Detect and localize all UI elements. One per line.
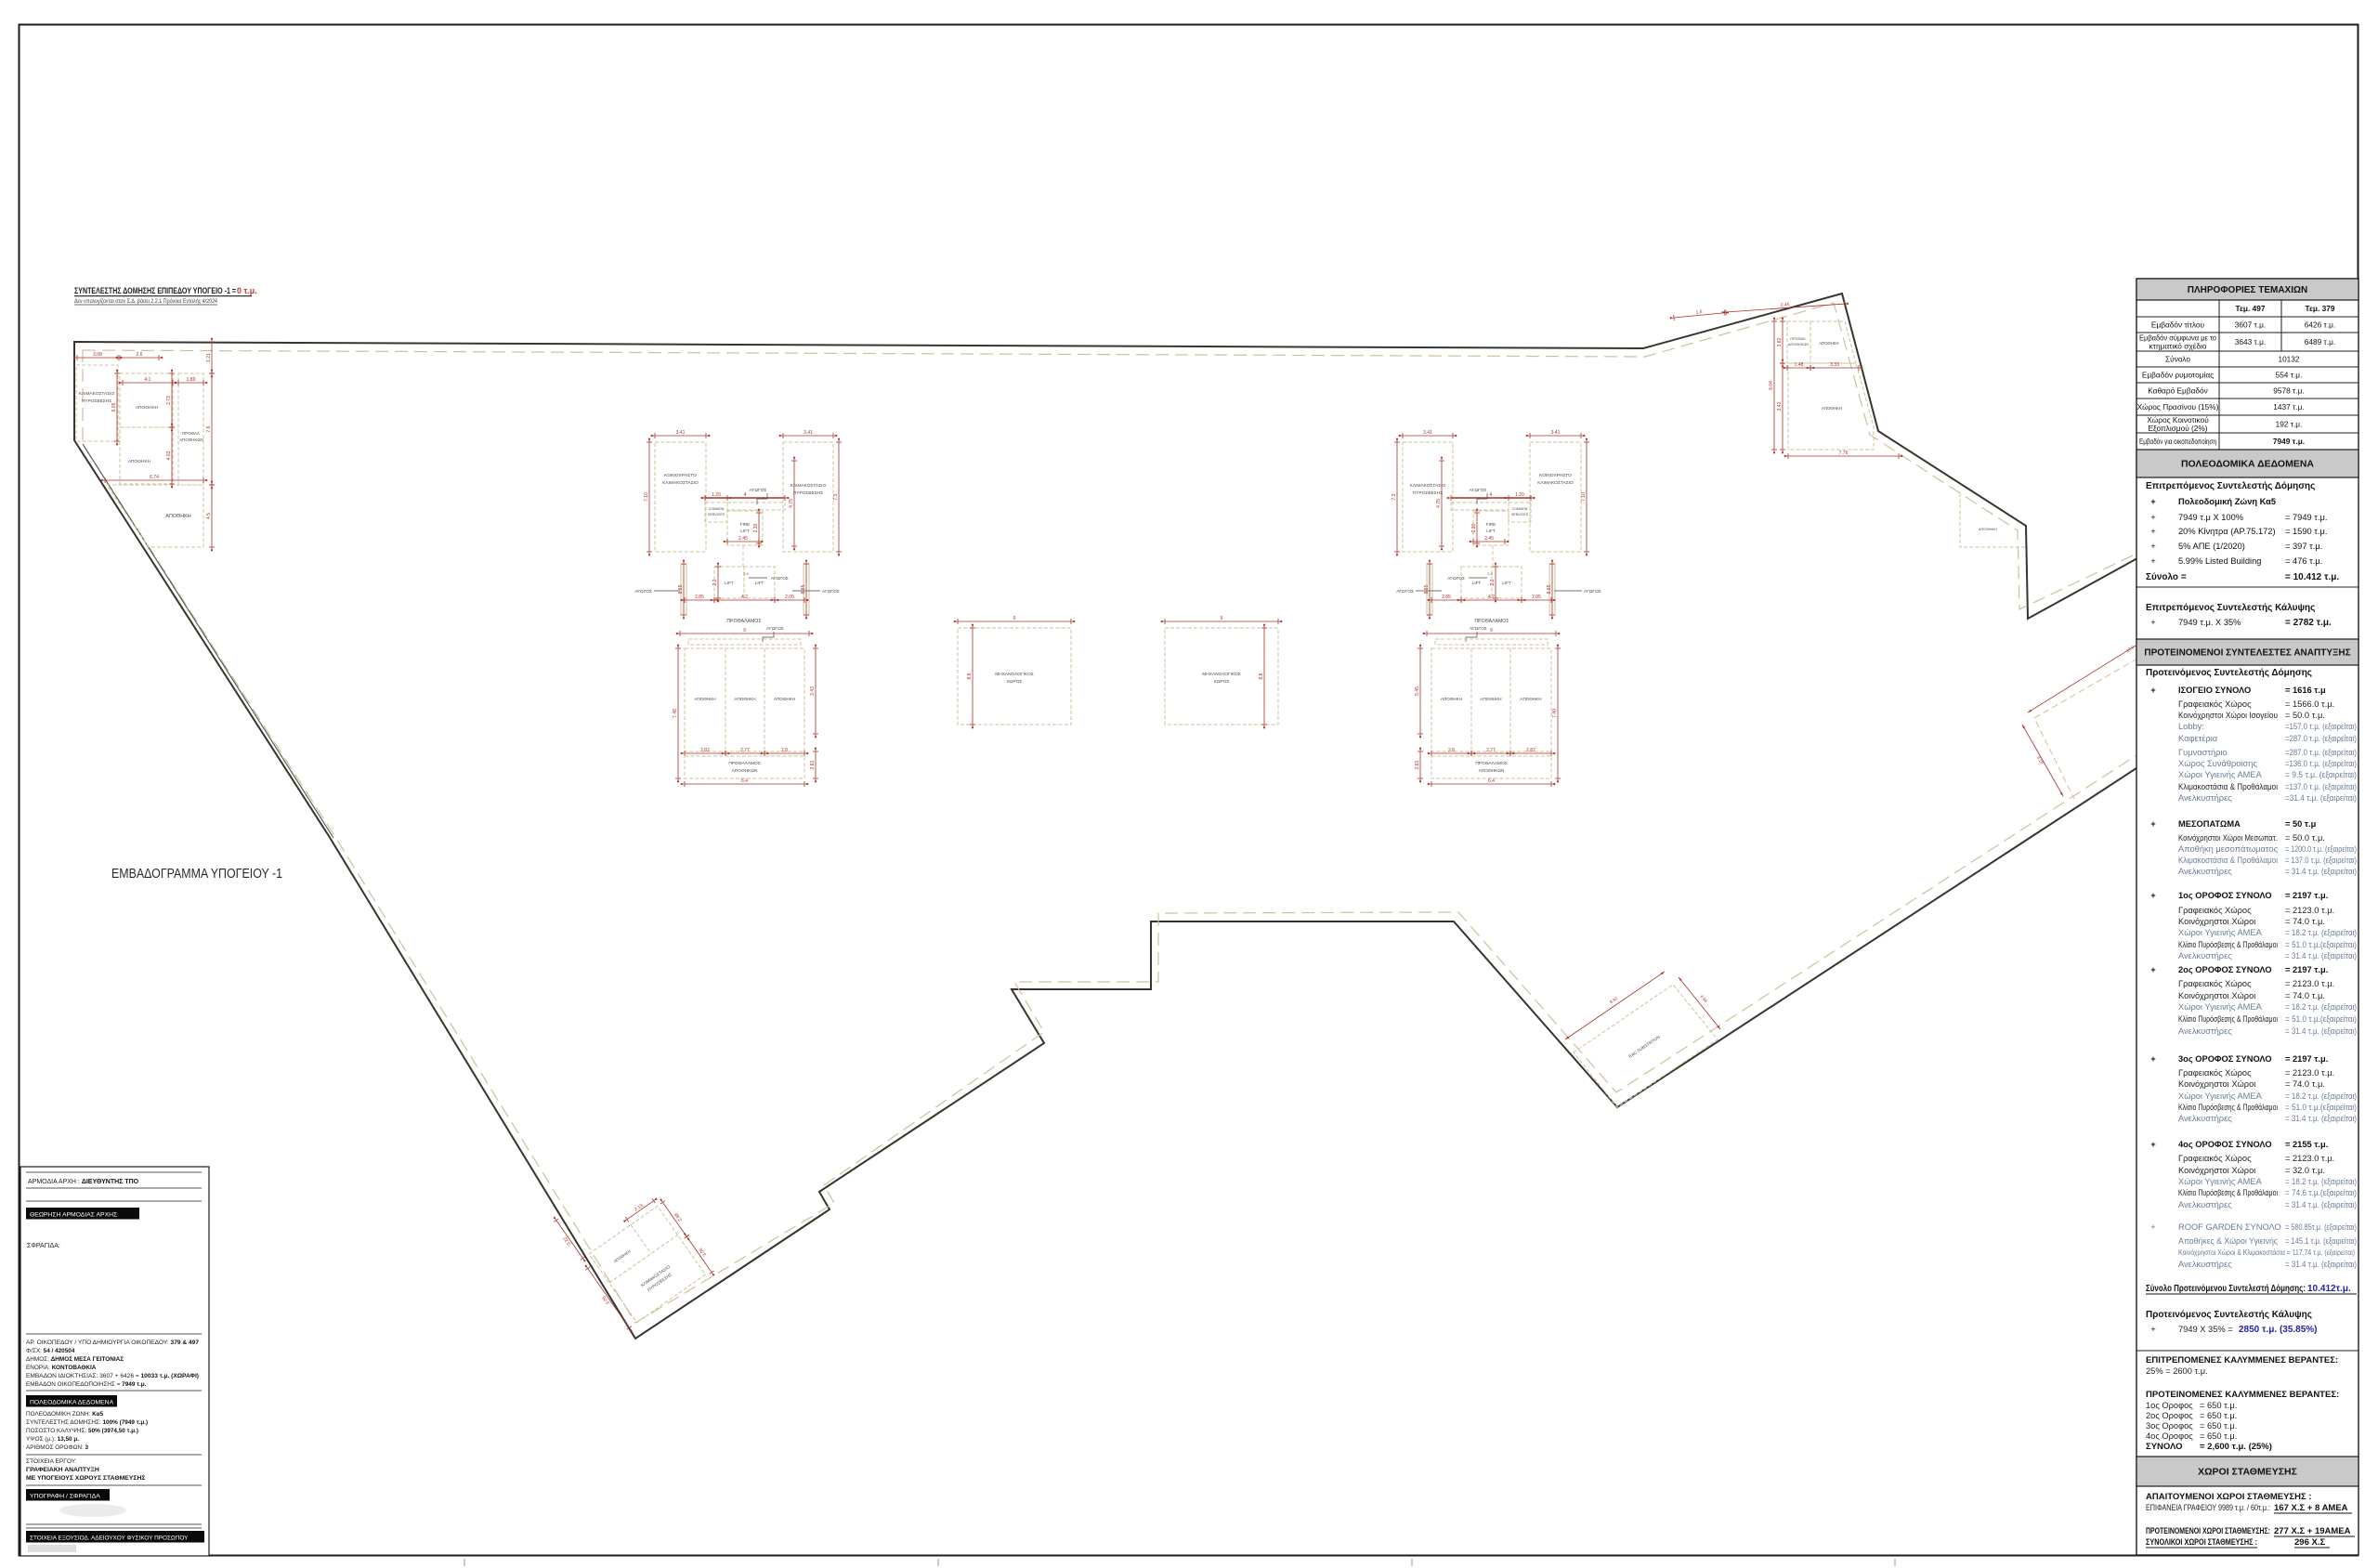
svg-text:3607 τ.μ.: 3607 τ.μ. [2235,320,2266,330]
svg-text:ΑΡΙΘΜΟΣ ΟΡΟΦΩΝ: 3: ΑΡΙΘΜΟΣ ΟΡΟΦΩΝ: 3 [26,1444,89,1451]
svg-text:LIFT: LIFT [740,529,750,533]
svg-text:8.65: 8.65 [678,584,684,594]
svg-text:20% Κίνητρα (ΑΡ.75.172): 20% Κίνητρα (ΑΡ.75.172) [2178,527,2276,536]
svg-text:10132: 10132 [2278,355,2299,364]
svg-text:Κλίσιο Πυρόσβεσης & Προθάλαμοι: Κλίσιο Πυρόσβεσης & Προθάλαμοι [2178,1188,2278,1197]
svg-text:3.33: 3.33 [1830,362,1839,368]
svg-text:= 31.4 τ.μ. (εξαιρείται): = 31.4 τ.μ. (εξαιρείται) [2285,1200,2357,1209]
svg-text:= 9.5 τ.μ. (εξαιρείται): = 9.5 τ.μ. (εξαιρείται) [2285,770,2357,779]
svg-text:4.03: 4.03 [166,451,172,460]
svg-text:ΕΜΒΑΔΟΝ ΙΔΙΟΚΤΗΣΙΑΣ: 3607 + 64: ΕΜΒΑΔΟΝ ΙΔΙΟΚΤΗΣΙΑΣ: 3607 + 6426 = 10033… [26,1373,199,1379]
svg-text:3.82: 3.82 [1777,337,1783,346]
svg-text:2.4: 2.4 [1487,571,1493,576]
svg-text:= 397 τ.μ.: = 397 τ.μ. [2285,542,2322,551]
svg-text:1ος ΟΡΟΦΟΣ ΣΥΝΟΛΟ: 1ος ΟΡΟΦΟΣ ΣΥΝΟΛΟ [2178,891,2272,900]
svg-text:5.45: 5.45 [1415,686,1420,696]
svg-text:= 2123.0 τ.μ.: = 2123.0 τ.μ. [2285,979,2334,988]
svg-text:= 2155 τ.μ.: = 2155 τ.μ. [2285,1140,2328,1149]
svg-text:Γραφειακός Χώρος: Γραφειακός Χώρος [2178,1154,2252,1163]
svg-text:7.10: 7.10 [644,492,649,502]
svg-text:+: + [2150,965,2156,974]
svg-text:= 31.4 τ.μ. (εξαιρείται): = 31.4 τ.μ. (εξαιρείται) [2285,1026,2357,1036]
svg-text:ΜΗΧΑΝΟΛΟΓΙΚΟΣ: ΜΗΧΑΝΟΛΟΓΙΚΟΣ [1202,672,1241,677]
svg-text:Επιτρεπόμενος Συντελεστής Κάλυ: Επιτρεπόμενος Συντελεστής Κάλυψης [2146,603,2315,613]
svg-text:= 74.0 τ.μ.: = 74.0 τ.μ. [2285,1079,2325,1089]
svg-text:+: + [2150,618,2155,627]
svg-text:= 51.0 τ.μ.(εξαιρείται): = 51.0 τ.μ.(εξαιρείται) [2285,1103,2357,1112]
svg-text:2.73: 2.73 [166,396,172,405]
svg-text:2.05: 2.05 [1532,595,1541,600]
svg-text:ΣΥΝΤΕΛΕΣΤΗΣ ΔΟΜΗΣΗΣ ΕΠΙΠΕΔΟΥ Υ: ΣΥΝΤΕΛΕΣΤΗΣ ΔΟΜΗΣΗΣ ΕΠΙΠΕΔΟΥ ΥΠΟΓΕΙΟ -1 … [74,286,236,295]
svg-text:= 18.2 τ.μ. (εξαιρείται): = 18.2 τ.μ. (εξαιρείται) [2285,1091,2357,1101]
svg-text:LIFT: LIFT [1472,581,1482,585]
svg-text:ΑΠΟΘΗΚΗ: ΑΠΟΘΗΚΗ [136,405,159,411]
svg-text:Χώροι Υγιεινής ΑΜΕΑ: Χώροι Υγιεινής ΑΜΕΑ [2178,928,2263,937]
svg-text:= 10.412 τ.μ.: = 10.412 τ.μ. [2285,572,2339,582]
svg-text:1437 τ.μ.: 1437 τ.μ. [2273,402,2304,412]
svg-text:FIRE: FIRE [1486,522,1496,527]
svg-text:Ανελκυστήρες: Ανελκυστήρες [2178,793,2232,803]
svg-text:ΑΠΑΙΤΟΥΜΕΝΟΙ ΧΩΡΟΙ ΣΤΑΘΜΕΥΣΗΣ: ΑΠΑΙΤΟΥΜΕΝΟΙ ΧΩΡΟΙ ΣΤΑΘΜΕΥΣΗΣ : [2146,1492,2312,1502]
svg-text:COMMON: COMMON [1512,507,1528,511]
svg-text:= 650 τ.μ.: = 650 τ.μ. [2200,1421,2237,1431]
svg-text:ΑΡΜΟΔΙΑ ΑΡΧΗ : ΔΙΕΥΘΥΝΤΗΣ ΤΠΟ: ΑΡΜΟΔΙΑ ΑΡΧΗ : ΔΙΕΥΘΥΝΤΗΣ ΤΠΟ [28,1179,139,1185]
svg-text:+: + [2150,891,2156,900]
svg-text:2850 τ.μ. (35.85%): 2850 τ.μ. (35.85%) [2239,1325,2318,1335]
svg-text:= 650 τ.μ.: = 650 τ.μ. [2200,1431,2237,1441]
svg-text:2.81: 2.81 [1415,760,1420,769]
svg-text:ΚΛΙΜΑΚΟΣΤΑΣΙΟ: ΚΛΙΜΑΚΟΣΤΑΣΙΟ [79,391,115,397]
svg-text:ΘΕΩΡΗΣΗ ΑΡΜΟΔΙΑΣ ΑΡΧΗΣ: ΘΕΩΡΗΣΗ ΑΡΜΟΔΙΑΣ ΑΡΧΗΣ [30,1212,117,1219]
svg-text:+: + [2150,527,2155,536]
svg-text:2.77: 2.77 [740,748,750,753]
svg-text:9: 9 [1221,616,1223,621]
svg-text:2.81: 2.81 [810,760,816,769]
svg-text:ΠΥΡΟΣΒΕΣΗΣ: ΠΥΡΟΣΒΕΣΗΣ [82,399,111,404]
svg-text:= 51.0 τ.μ.(εξαιρείται): = 51.0 τ.μ.(εξαιρείται) [2285,1014,2357,1024]
svg-text:7949 τ.μ.: 7949 τ.μ. [2273,437,2305,446]
svg-text:Κοινόχρηστοι Χώροι: Κοινόχρηστοι Χώροι [2178,917,2255,926]
svg-text:Κλίσιο Πυρόσβεσης & Προθάλαμοι: Κλίσιο Πυρόσβεσης & Προθάλαμοι [2178,1103,2278,1112]
svg-text:Χώρος Πρασίνου (15%): Χώρος Πρασίνου (15%) [2137,402,2219,412]
svg-text:Χώροι Υγιεινής ΑΜΕΑ: Χώροι Υγιεινής ΑΜΕΑ [2178,1091,2263,1101]
svg-text:+: + [2150,497,2156,506]
svg-text:4ος ΟΡΟΦΟΣ ΣΥΝΟΛΟ: 4ος ΟΡΟΦΟΣ ΣΥΝΟΛΟ [2178,1140,2272,1149]
svg-text:ΠΡΟΘΑΛΑΜΟΣ: ΠΡΟΘΑΛΑΜΟΣ [1474,619,1509,624]
svg-text:9: 9 [1490,628,1493,634]
svg-text:Αποθήκη μεσοπάτωματος: Αποθήκη μεσοπάτωματος [2178,844,2279,854]
svg-text:ΑΠΟΘΗΚΗ: ΑΠΟΘΗΚΗ [1819,341,1838,346]
svg-text:Χώρος Συνάθροισης: Χώρος Συνάθροισης [2178,759,2257,768]
svg-text:LIFT: LIFT [725,581,734,585]
svg-text:Ανελκυστήρες: Ανελκυστήρες [2178,1260,2232,1269]
svg-text:Κλίσιο Πυρόσβεσης & Προθάλαμοι: Κλίσιο Πυρόσβεσης & Προθάλαμοι [2178,940,2278,949]
svg-text:+: + [2150,1325,2155,1334]
svg-text:ΜΗΧΑΝΟΛΟΓΙΚΟΣ: ΜΗΧΑΝΟΛΟΓΙΚΟΣ [995,672,1034,677]
svg-text:3.41: 3.41 [1551,430,1561,436]
svg-text:Γυμναστήριο: Γυμναστήριο [2178,748,2228,757]
svg-text:3643 τ.μ.: 3643 τ.μ. [2235,337,2266,346]
svg-text:ΑΠΟΘΗΚΩΝ: ΑΠΟΘΗΚΩΝ [1788,343,1809,346]
svg-text:= 2782 τ.μ.: = 2782 τ.μ. [2285,618,2332,628]
svg-text:ΑΓΩΓΟΣ: ΑΓΩΓΟΣ [771,576,789,581]
svg-text:= 74.0 τ.μ.: = 74.0 τ.μ. [2285,917,2325,926]
svg-text:ΠΛΗΡΟΦΟΡΙΕΣ ΤΕΜΑΧΙΩΝ: ΠΛΗΡΟΦΟΡΙΕΣ ΤΕΜΑΧΙΩΝ [2188,285,2307,295]
svg-text:Γραφειακός Χώρος: Γραφειακός Χώρος [2178,906,2252,915]
svg-text:Κλιμακοστάσια & Προθάλαμοι: Κλιμακοστάσια & Προθάλαμοι [2178,856,2278,865]
svg-text:Εξοπλισμού (2%): Εξοπλισμού (2%) [2148,424,2207,433]
svg-text:7949 τ.μ Χ 100%: 7949 τ.μ Χ 100% [2178,513,2243,522]
svg-text:3.41: 3.41 [676,430,686,436]
svg-text:Lobby:: Lobby: [2178,722,2204,731]
svg-text:COMMON: COMMON [709,507,725,511]
svg-text:ΚΟΙΝΟΧΡΗΣΤΟ: ΚΟΙΝΟΧΡΗΣΤΟ [1539,473,1572,478]
svg-text:1.48: 1.48 [1795,362,1804,368]
svg-text:ΠΡΟΘΑΛΑΜΟΣ: ΠΡΟΘΑΛΑΜΟΣ [728,761,760,766]
svg-text:2.45: 2.45 [1781,302,1790,308]
svg-text:= 50 τ.μ: = 50 τ.μ [2285,819,2317,829]
svg-text:= 2197 τ.μ.: = 2197 τ.μ. [2285,1054,2328,1064]
svg-text:ΑΠΟΘΗΚΗ: ΑΠΟΘΗΚΗ [734,697,755,701]
svg-text:ΑΠΟΘΗΚΗ: ΑΠΟΘΗΚΗ [1480,697,1501,701]
svg-text:+: + [2150,513,2155,522]
svg-text:ΑΠΟΘΗΚΗ: ΑΠΟΘΗΚΗ [1822,406,1842,411]
svg-text:= 1590 τ.μ.: = 1590 τ.μ. [2285,527,2327,536]
svg-text:ΑΠΟΘΗΚΗ: ΑΠΟΘΗΚΗ [694,697,715,701]
svg-text:Προτεινόμενος Συντελεστής Δόμη: Προτεινόμενος Συντελεστής Δόμησης [2146,668,2312,678]
svg-text:192 τ.μ.: 192 τ.μ. [2276,420,2303,429]
svg-text:=287.0 τ.μ. (εξαιρείται): =287.0 τ.μ. (εξαιρείται) [2285,748,2357,757]
svg-text:ΣΥΝΟΛΙΚΟΙ ΧΩΡΟΙ ΣΤΑΘΜΕΥΣΗΣ :: ΣΥΝΟΛΙΚΟΙ ΧΩΡΟΙ ΣΤΑΘΜΕΥΣΗΣ : [2146,1537,2257,1548]
svg-text:ΠΟΛΕΟΔΟΜΙΚΑ ΔΕΔΟΜΕΝΑ: ΠΟΛΕΟΔΟΜΙΚΑ ΔΕΔΟΜΕΝΑ [30,1400,114,1406]
svg-text:= 74.6 τ.μ.(εξαιρείται): = 74.6 τ.μ.(εξαιρείται) [2285,1188,2357,1197]
svg-text:= 31.4 τ.μ. (εξαιρείται): = 31.4 τ.μ. (εξαιρείται) [2285,1260,2357,1269]
svg-text:2.85: 2.85 [1442,595,1451,600]
svg-text:2.05: 2.05 [785,595,794,600]
svg-text:= 31.4 τ.μ. (εξαιρείται): = 31.4 τ.μ. (εξαιρείται) [2285,1114,2357,1123]
svg-text:2.30: 2.30 [1471,523,1477,532]
svg-text:4.5: 4.5 [206,513,212,519]
svg-text:Κοινόχρηστοι Χώροι: Κοινόχρηστοι Χώροι [2178,991,2255,1000]
svg-text:= 18.2 τ.μ. (εξαιρείται): = 18.2 τ.μ. (εξαιρείται) [2285,928,2357,937]
svg-text:Αποθήκες & Χώροι Υγιεινής: Αποθήκες & Χώροι Υγιεινής [2178,1236,2278,1246]
svg-text:2.2: 2.2 [1490,579,1496,585]
svg-text:ΑΠΟΘΗΚΗ: ΑΠΟΘΗΚΗ [128,459,151,464]
svg-text:1.21: 1.21 [206,353,212,362]
svg-text:Σύνολο Προτεινόμενου Συντελεστ: Σύνολο Προτεινόμενου Συντελεστή Δόμησης: [2146,1284,2306,1294]
svg-text:7.6: 7.6 [206,425,212,432]
svg-text:0 τ.μ.: 0 τ.μ. [237,286,257,295]
svg-text:554 τ.μ.: 554 τ.μ. [2276,371,2303,380]
svg-text:= 50.0 τ.μ.: = 50.0 τ.μ. [2285,833,2325,843]
svg-text:ΠΡΟΘΑΛ.: ΠΡΟΘΑΛ. [182,431,201,436]
svg-text:ΑΠΟΘΗΚΩΝ: ΑΠΟΘΗΚΩΝ [1479,768,1505,774]
svg-text:= 1566.0 τ.μ.: = 1566.0 τ.μ. [2285,699,2334,709]
svg-text:5% ΑΠΕ (1/2020): 5% ΑΠΕ (1/2020) [2178,542,2245,551]
svg-text:ΣΤΟΙΧΕΙΑ ΕΞΟΥΣΙΟΔ. ΑΔΕΙΟΥΧΟΥ Φ: ΣΤΟΙΧΕΙΑ ΕΞΟΥΣΙΟΔ. ΑΔΕΙΟΥΧΟΥ ΦΥΣΙΚΟΥ ΠΡΟ… [30,1535,189,1542]
svg-text:7.3: 7.3 [833,493,839,500]
svg-text:6.4: 6.4 [741,778,748,784]
svg-text:SERVICES: SERVICES [708,513,725,516]
svg-text:4: 4 [744,492,747,498]
svg-text:1.20: 1.20 [1515,492,1524,498]
svg-text:4.75: 4.75 [789,499,794,508]
svg-text:3.41: 3.41 [1423,430,1432,436]
svg-text:8.8: 8.8 [967,673,973,679]
svg-text:3.43: 3.43 [810,686,816,696]
svg-text:Ανελκυστήρες: Ανελκυστήρες [2178,867,2232,876]
svg-text:2.30: 2.30 [753,523,759,532]
svg-text:= 74.0 τ.μ.: = 74.0 τ.μ. [2285,991,2325,1000]
svg-text:9: 9 [1013,616,1016,621]
svg-text:Γραφειακός Χώρος: Γραφειακός Χώρος [2178,1068,2252,1078]
svg-text:277 Χ.Σ + 19ΑΜΕΑ: 277 Χ.Σ + 19ΑΜΕΑ [2274,1526,2351,1536]
svg-text:3ος ΟΡΟΦΟΣ ΣΥΝΟΛΟ: 3ος ΟΡΟΦΟΣ ΣΥΝΟΛΟ [2178,1054,2272,1064]
svg-text:Πολεοδομική Ζώνη Κα5: Πολεοδομική Ζώνη Κα5 [2178,497,2276,506]
svg-text:Ανελκυστήρες: Ανελκυστήρες [2178,1026,2232,1036]
svg-text:ΣΤΟΙΧΕΙΑ ΕΡΓΟΥ:: ΣΤΟΙΧΕΙΑ ΕΡΓΟΥ: [26,1458,77,1465]
svg-text:= 2123.0 τ.μ.: = 2123.0 τ.μ. [2285,906,2334,915]
svg-text:Γραφειακός Χώρος: Γραφειακός Χώρος [2178,699,2252,709]
svg-text:= 476 τ.μ.: = 476 τ.μ. [2285,556,2322,566]
svg-text:LIFT: LIFT [1486,529,1496,533]
svg-text:ΕΠΙΤΡΕΠΟΜΕΝΕΣ ΚΑΛΥΜΜΕΝΕΣ ΒΕΡΑΝ: ΕΠΙΤΡΕΠΟΜΕΝΕΣ ΚΑΛΥΜΜΕΝΕΣ ΒΕΡΑΝΤΕΣ: [2146,1355,2338,1365]
svg-text:ΠΟΛΕΟΔΟΜΙΚΑ ΔΕΔΟΜΕΝΑ: ΠΟΛΕΟΔΟΜΙΚΑ ΔΕΔΟΜΕΝΑ [2181,459,2314,470]
svg-text:1ος Οροφος: 1ος Οροφος [2146,1401,2193,1410]
svg-text:ΠΡΟΘΑΛΑΜΟΣ: ΠΡΟΘΑΛΑΜΟΣ [1475,761,1507,766]
svg-text:4.2: 4.2 [1488,595,1495,600]
svg-text:ΓΡΑΦΕΙΑΚΗ ΑΝΑΠΤΥΞΗ: ΓΡΑΦΕΙΑΚΗ ΑΝΑΠΤΥΞΗ [26,1467,99,1473]
svg-text:= 51.0 τ.μ.(εξαιρείται): = 51.0 τ.μ.(εξαιρείται) [2285,940,2357,949]
svg-text:= 580.85τ.μ. (εξαιρείται): = 580.85τ.μ. (εξαιρείται) [2285,1222,2357,1232]
svg-text:7.10: 7.10 [1581,492,1587,502]
svg-text:2.85: 2.85 [695,595,704,600]
svg-text:ΕΜΒΑΔΟΓΡΑΜΜΑ ΥΠΟΓΕΙΟΥ -1: ΕΜΒΑΔΟΓΡΑΜΜΑ ΥΠΟΓΕΙΟΥ -1 [111,867,282,882]
svg-text:= 2123.0 τ.μ.: = 2123.0 τ.μ. [2285,1154,2334,1163]
svg-text:8.65: 8.65 [801,584,806,594]
svg-text:ΜΕ ΥΠΟΓΕΙΟΥΣ ΧΩΡΟΥΣ ΣΤΑΘΜΕΥΣΗΣ: ΜΕ ΥΠΟΓΕΙΟΥΣ ΧΩΡΟΥΣ ΣΤΑΘΜΕΥΣΗΣ [26,1475,145,1482]
svg-text:Σύνολο: Σύνολο [2165,355,2190,364]
svg-text:= 7949 τ.μ.: = 7949 τ.μ. [2285,513,2327,522]
svg-text:ΠΡΟΘΑΛΑΜΟΣ: ΠΡΟΘΑΛΑΜΟΣ [726,619,761,624]
svg-text:ΑΠΟΘΗΚΗ: ΑΠΟΘΗΚΗ [1520,697,1541,701]
svg-text:ΑΓΩΓΟΣ: ΑΓΩΓΟΣ [634,589,652,595]
svg-text:ΥΨΟΣ (μ.): 13,50 μ.: ΥΨΟΣ (μ.): 13,50 μ. [26,1436,79,1443]
svg-text:6.74: 6.74 [150,475,159,480]
svg-text:Κοινόχρηστοι Χώροι: Κοινόχρηστοι Χώροι [2178,1079,2255,1089]
svg-text:ΑΓΩΓΟΣ: ΑΓΩΓΟΣ [1396,589,1414,595]
svg-text:Ανελκυστήρες: Ανελκυστήρες [2178,1114,2232,1123]
svg-text:Εμβαδόν ρυμοτομίας: Εμβαδόν ρυμοτομίας [2142,371,2214,380]
svg-text:= 18.2 τ.μ. (εξαιρείται): = 18.2 τ.μ. (εξαιρείται) [2285,1177,2357,1186]
svg-text:ΠΟΛΕΟΔΟΜΙΚΗ ΖΩΝΗ: Κα5: ΠΟΛΕΟΔΟΜΙΚΗ ΖΩΝΗ: Κα5 [26,1411,104,1418]
svg-text:3.41: 3.41 [804,430,813,436]
svg-text:Γραφειακός Χώρος: Γραφειακός Χώρος [2178,979,2252,988]
svg-text:ΧΩΡΟΣ: ΧΩΡΟΣ [1214,679,1230,685]
svg-text:ΑΓΩΓΟΣ: ΑΓΩΓΟΣ [1470,488,1487,493]
svg-text:6426 τ.μ.: 6426 τ.μ. [2305,320,2335,330]
svg-text:3.42: 3.42 [1777,401,1783,411]
svg-text:ΑΠΟΘΗΚΩΝ: ΑΠΟΘΗΚΩΝ [732,768,758,774]
svg-text:8.65: 8.65 [1547,584,1552,594]
svg-text:= 31.4 τ.μ. (εξαιρείται): = 31.4 τ.μ. (εξαιρείται) [2285,951,2357,960]
svg-text:ΚΛΙΜΑΚΟΣΤΑΣΙΟ: ΚΛΙΜΑΚΟΣΤΑΣΙΟ [662,480,699,486]
svg-text:+: + [2150,1054,2156,1064]
svg-text:8.65: 8.65 [1424,584,1430,594]
svg-text:2.8: 2.8 [1448,748,1455,753]
svg-text:Κοινόχρηστοι Χώροι Ισογείου: Κοινόχρηστοι Χώροι Ισογείου [2178,711,2278,720]
svg-text:ΠΡΟΘΑΛ.: ΠΡΟΘΑΛ. [1790,337,1806,341]
svg-text:7949 X 35% =: 7949 X 35% = [2178,1325,2233,1334]
svg-text:ΚΟΙΝΟΧΡΗΣΤΟ: ΚΟΙΝΟΧΡΗΣΤΟ [664,473,697,478]
svg-text:3.08: 3.08 [93,352,102,358]
svg-text:= 2197 τ.μ.: = 2197 τ.μ. [2285,891,2328,900]
svg-text:ΜΕΣΟΠΑΤΩΜΑ: ΜΕΣΟΠΑΤΩΜΑ [2178,819,2241,829]
svg-text:2ος Οροφος: 2ος Οροφος [2146,1411,2193,1420]
svg-text:2.8: 2.8 [781,748,788,753]
svg-text:+: + [2150,1140,2156,1149]
svg-text:2.2: 2.2 [712,579,718,585]
svg-text:Εμβαδόν για οικοπεδοποίηση: Εμβαδόν για οικοπεδοποίηση [2139,437,2216,446]
svg-text:4.2: 4.2 [741,595,748,600]
svg-text:ΑΓΩΓΟΣ: ΑΓΩΓΟΣ [1447,576,1465,581]
svg-text:ΚΛΙΜΑΚΟΣΤΑΣΙΟ: ΚΛΙΜΑΚΟΣΤΑΣΙΟ [790,483,827,489]
svg-text:=157.0 τ.μ. (εξαιρείται): =157.0 τ.μ. (εξαιρείται) [2285,722,2357,731]
svg-text:2ος ΟΡΟΦΟΣ ΣΥΝΟΛΟ: 2ος ΟΡΟΦΟΣ ΣΥΝΟΛΟ [2178,965,2272,974]
svg-text:8.8: 8.8 [1259,673,1264,679]
svg-text:ΑΓΩΓΟΣ: ΑΓΩΓΟΣ [766,626,784,632]
svg-text:Χώροι Υγιεινής ΑΜΕΑ: Χώροι Υγιεινής ΑΜΕΑ [2178,1177,2263,1186]
svg-text:4.1: 4.1 [145,377,151,383]
svg-text:ΚΛΙΜΑΚΟΣΤΑΣΙΟ: ΚΛΙΜΑΚΟΣΤΑΣΙΟ [1410,483,1446,489]
svg-text:4ος Οροφος: 4ος Οροφος [2146,1431,2193,1441]
svg-text:Κοινόχρηστοι Χώροι Μεσωπατ.: Κοινόχρηστοι Χώροι Μεσωπατ. [2178,833,2278,843]
svg-text:ΑΠΟΘΗΚΗ: ΑΠΟΘΗΚΗ [1441,697,1462,701]
svg-text:LIFT: LIFT [1502,581,1511,585]
svg-text:=287.0 τ.μ. (εξαιρείται): =287.0 τ.μ. (εξαιρείται) [2285,734,2357,743]
svg-text:ΕΠΙΦΑΝΕΙΑ ΓΡΑΦΕΙΟΥ 9989 τ.μ.: ΕΠΙΦΑΝΕΙΑ ΓΡΑΦΕΙΟΥ 9989 τ.μ. / 60τ.μ.: [2146,1503,2270,1512]
svg-text:= 31.4 τ.μ. (εξαιρείται): = 31.4 τ.μ. (εξαιρείται) [2285,867,2357,876]
svg-text:ΑΠΟΘΗΚΩΝ: ΑΠΟΘΗΚΩΝ [179,438,203,442]
svg-text:+: + [2150,542,2155,551]
svg-text:= 145.1 τ.μ. (εξαιρείται): = 145.1 τ.μ. (εξαιρείται) [2285,1236,2357,1246]
svg-text:ΣΦΡΑΓΙΔΑ:: ΣΦΡΑΓΙΔΑ: [27,1243,60,1249]
svg-text:1.20: 1.20 [712,492,721,498]
svg-text:ΑΠΟΘΗΚΗ: ΑΠΟΘΗΚΗ [165,514,190,519]
svg-text:Κοινόχρηστοι Χώροι: Κοινόχρηστοι Χώροι [2178,1166,2255,1175]
svg-text:ΑΠΟΘΗΚΗ: ΑΠΟΘΗΚΗ [774,697,795,701]
svg-text:7949 τ.μ. Χ 35%: 7949 τ.μ. Χ 35% [2178,618,2241,627]
svg-text:Κλίσιο Πυρόσβεσης & Προθάλαμοι: Κλίσιο Πυρόσβεσης & Προθάλαμοι [2178,1014,2278,1024]
svg-text:= 1200.0 τ.μ. (εξαιρείται): = 1200.0 τ.μ. (εξαιρείται) [2285,844,2357,854]
svg-text:ΑΡ. ΟΙΚΟΠΕΔΟΥ / ΥΠΟ ΔΗΜΙΟΥΡΓΙΑ: ΑΡ. ΟΙΚΟΠΕΔΟΥ / ΥΠΟ ΔΗΜΙΟΥΡΓΙΑ ΟΙΚΟΠΕΔΟΥ… [26,1339,199,1346]
svg-text:1.5: 1.5 [1695,309,1703,316]
svg-text:LIFT: LIFT [755,581,764,585]
svg-text:ΑΓΩΓΟΣ: ΑΓΩΓΟΣ [1584,589,1601,595]
svg-text:Τεμ. 379: Τεμ. 379 [2306,304,2335,313]
svg-text:ΑΓΩΓΟΣ: ΑΓΩΓΟΣ [1470,626,1487,632]
svg-text:2.6: 2.6 [137,352,143,358]
svg-text:+: + [2150,556,2155,566]
svg-text:ΠΡΟΤΕΙΝΟΜΕΝΟΙ ΧΩΡΟΙ ΣΤΑΘΜΕΥΣΗΣ: ΠΡΟΤΕΙΝΟΜΕΝΟΙ ΧΩΡΟΙ ΣΤΑΘΜΕΥΣΗΣ: [2146,1526,2270,1536]
svg-text:=31.4 τ.μ. (εξαιρείται): =31.4 τ.μ. (εξαιρείται) [2285,793,2357,803]
svg-text:296 Χ.Σ: 296 Χ.Σ [2294,1537,2325,1548]
svg-text:=137.0 τ.μ. (εξαιρείται): =137.0 τ.μ. (εξαιρείται) [2285,782,2357,791]
svg-text:ΠΟΣΟΣΤΟ ΚΑΛΥΨΗΣ: 50% (3974,50: ΠΟΣΟΣΤΟ ΚΑΛΥΨΗΣ: 50% (3974,50 τ.μ.) [26,1428,138,1434]
svg-text:6489 τ.μ.: 6489 τ.μ. [2305,337,2335,346]
svg-text:= 50.0 τ.μ.: = 50.0 τ.μ. [2285,711,2325,720]
svg-text:7.76: 7.76 [1839,451,1849,456]
svg-text:Καφετέρια: Καφετέρια [2178,734,2218,743]
svg-text:Προτεινόμενος Συντελεστής Κάλυ: Προτεινόμενος Συντελεστής Κάλυψης [2146,1310,2312,1320]
svg-text:25% = 2600 τ.μ.: 25% = 2600 τ.μ. [2146,1366,2208,1376]
svg-text:2.45: 2.45 [738,536,748,542]
svg-text:+: + [2150,686,2156,695]
svg-text:2.82: 2.82 [700,748,710,753]
svg-text:2.77: 2.77 [1486,748,1496,753]
svg-text:Χώροι Υγιεινής ΑΜΕΑ: Χώροι Υγιεινής ΑΜΕΑ [2178,770,2263,779]
svg-text:= 1616 τ.μ: = 1616 τ.μ [2285,686,2326,695]
svg-text:Ανελκυστήρες: Ανελκυστήρες [2178,1200,2232,1209]
svg-text:+: + [2150,1222,2155,1232]
svg-text:9578 τ.μ.: 9578 τ.μ. [2273,386,2304,396]
svg-text:2.45: 2.45 [1484,536,1494,542]
svg-text:ΧΩΡΟΣ: ΧΩΡΟΣ [1007,679,1023,685]
svg-text:ΔΗΜΟΣ: ΔΗΜΟΣ ΜΕΣΑ ΓΕΙΤΟΝΙΑΣ: ΔΗΜΟΣ: ΔΗΜΟΣ ΜΕΣΑ ΓΕΙΤΟΝΙΑΣ [26,1356,124,1363]
svg-text:6.4: 6.4 [1488,778,1495,784]
svg-text:= 650 τ.μ.: = 650 τ.μ. [2200,1401,2237,1410]
svg-text:4.75: 4.75 [1436,499,1442,508]
svg-text:= 2,600 τ.μ. (25%): = 2,600 τ.μ. (25%) [2200,1442,2272,1452]
svg-text:ΑΓΩΓΟΣ: ΑΓΩΓΟΣ [822,589,840,595]
svg-text:= 2123.0 τ.μ.: = 2123.0 τ.μ. [2285,1068,2334,1078]
svg-text:167 Χ.Σ + 8 ΑΜΕΑ: 167 Χ.Σ + 8 ΑΜΕΑ [2274,1503,2348,1513]
svg-text:Επιτρεπόμενος Συντελεστής Δόμη: Επιτρεπόμενος Συντελεστής Δόμησης [2146,481,2315,491]
svg-text:7.3: 7.3 [1392,493,1397,500]
svg-text:= 137.0 τ.μ. (εξαιρείται): = 137.0 τ.μ. (εξαιρείται) [2285,856,2357,865]
svg-text:5.99% Listed Building: 5.99% Listed Building [2178,556,2261,566]
svg-text:Δεν υπολογίζονται στον Σ.Δ. βά: Δεν υπολογίζονται στον Σ.Δ. βάσει 2.2.1 … [74,298,218,305]
svg-text:ΚΛΙΜΑΚΟΣΤΑΣΙΟ: ΚΛΙΜΑΚΟΣΤΑΣΙΟ [1537,480,1574,486]
svg-text:ΣΥΝΤΕΛΕΣΤΗΣ ΔΟΜΗΣΗΣ: 100% (794: ΣΥΝΤΕΛΕΣΤΗΣ ΔΟΜΗΣΗΣ: 100% (7949 τ.μ.) [26,1419,148,1426]
svg-text:ΑΓΩΓΟΣ: ΑΓΩΓΟΣ [750,488,767,493]
svg-text:9.04: 9.04 [1769,381,1774,390]
svg-text:ΣΥΝΟΛΟ: ΣΥΝΟΛΟ [2146,1442,2183,1452]
svg-text:=136.0 τ.μ. (εξαιρείται): =136.0 τ.μ. (εξαιρείται) [2285,759,2357,768]
svg-text:ΠΥΡΟΣΒΕΣΗΣ: ΠΥΡΟΣΒΕΣΗΣ [793,490,823,496]
svg-text:2.4: 2.4 [743,571,749,576]
svg-text:Φ/ΣΧ: 54 / 420504: Φ/ΣΧ: 54 / 420504 [26,1348,75,1354]
svg-text:Χώροι Υγιεινής ΑΜΕΑ: Χώροι Υγιεινής ΑΜΕΑ [2178,1002,2263,1012]
svg-text:ROOF GARDEN ΣΥΝΟΛΟ: ROOF GARDEN ΣΥΝΟΛΟ [2178,1222,2281,1232]
svg-text:7.48: 7.48 [673,709,678,718]
svg-text:Εμβαδόν τίτλου: Εμβαδόν τίτλου [2151,320,2205,330]
svg-text:9: 9 [743,628,746,634]
svg-text:= 18.2 τ.μ. (εξαιρείται): = 18.2 τ.μ. (εξαιρείται) [2285,1002,2357,1012]
svg-text:ΑΠΟΘΗΚΗ: ΑΠΟΘΗΚΗ [1979,527,1997,531]
svg-text:= 2197 τ.μ.: = 2197 τ.μ. [2285,965,2328,974]
svg-text:Κλιμακοστάσια & Προθάλαμοι: Κλιμακοστάσια & Προθάλαμοι [2178,782,2278,791]
svg-text:Κοινόχρηστοι Χώροι & Κλιμακοστ: Κοινόχρηστοι Χώροι & Κλιμακοστάσια = 117… [2178,1248,2355,1257]
svg-text:ΕΜΒΑΔΟΝ ΟΙΚΟΠΕΔΟΠΟΙΗΣΗΣ = 7949: ΕΜΒΑΔΟΝ ΟΙΚΟΠΕΔΟΠΟΙΗΣΗΣ = 7949 τ.μ. [26,1381,147,1388]
svg-text:κτηματικό σχέδιο: κτηματικό σχέδιο [2149,342,2207,351]
svg-text:Σύνολο =: Σύνολο = [2146,572,2187,582]
svg-text:ΥΠΟΓΡΑΦΗ / ΣΦΡΑΓΙΔΑ: ΥΠΟΓΡΑΦΗ / ΣΦΡΑΓΙΔΑ [30,1494,100,1500]
svg-text:3ος Οροφος: 3ος Οροφος [2146,1421,2193,1431]
svg-text:ΙΣΟΓΕΙΟ ΣΥΝΟΛΟ: ΙΣΟΓΕΙΟ ΣΥΝΟΛΟ [2178,686,2251,695]
svg-text:ΠΡΟΤΕΙΝΟΜΕΝΟΙ ΣΥΝΤΕΛΕΣΤΕΣ ΑΝΑΠ: ΠΡΟΤΕΙΝΟΜΕΝΟΙ ΣΥΝΤΕΛΕΣΤΕΣ ΑΝΑΠΤΥΞΗΣ [2144,648,2350,659]
svg-text:4: 4 [1490,492,1493,498]
